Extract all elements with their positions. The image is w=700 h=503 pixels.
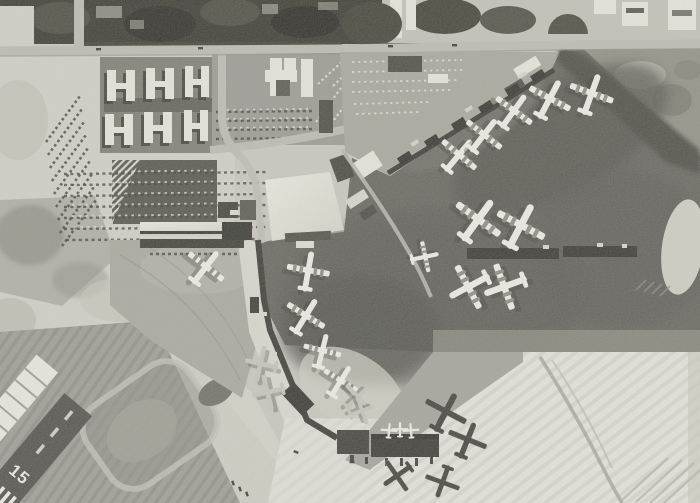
aerial-photograph: 15 [0,0,700,503]
film-grain [0,0,700,503]
airport-scene: 15 [0,0,700,503]
